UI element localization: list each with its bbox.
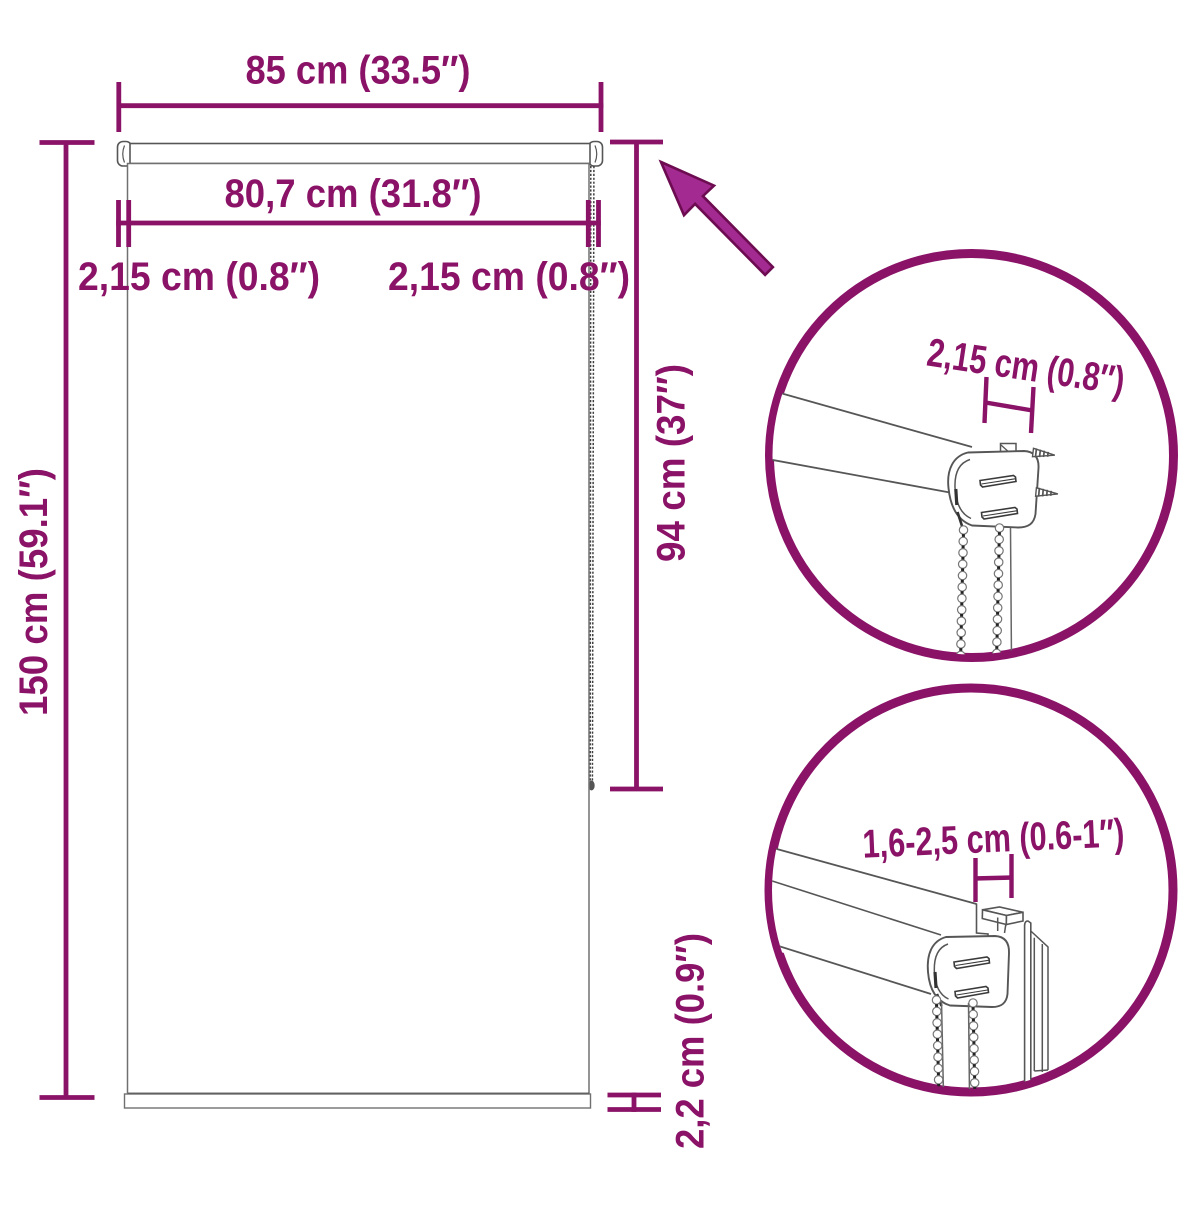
svg-text:2,15 cm (0.8″): 2,15 cm (0.8″) [78,255,320,299]
svg-text:80,7 cm (31.8″): 80,7 cm (31.8″) [225,172,482,216]
svg-text:150 cm (59.1″): 150 cm (59.1″) [12,468,56,716]
svg-text:94 cm (37″): 94 cm (37″) [650,364,694,562]
svg-text:85 cm (33.5″): 85 cm (33.5″) [246,49,471,93]
svg-text:2,15 cm (0.8″): 2,15 cm (0.8″) [388,255,630,299]
svg-text:2,2 cm (0.9″): 2,2 cm (0.9″) [669,933,713,1149]
